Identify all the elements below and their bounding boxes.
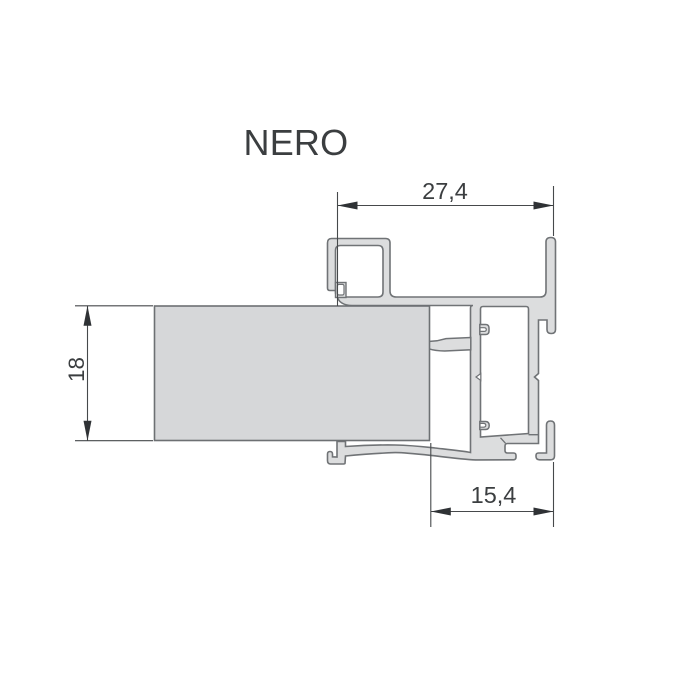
svg-text:27,4: 27,4 <box>422 178 468 204</box>
svg-text:NERO: NERO <box>244 122 349 163</box>
svg-text:15,4: 15,4 <box>471 482 517 508</box>
svg-text:18: 18 <box>64 357 89 382</box>
